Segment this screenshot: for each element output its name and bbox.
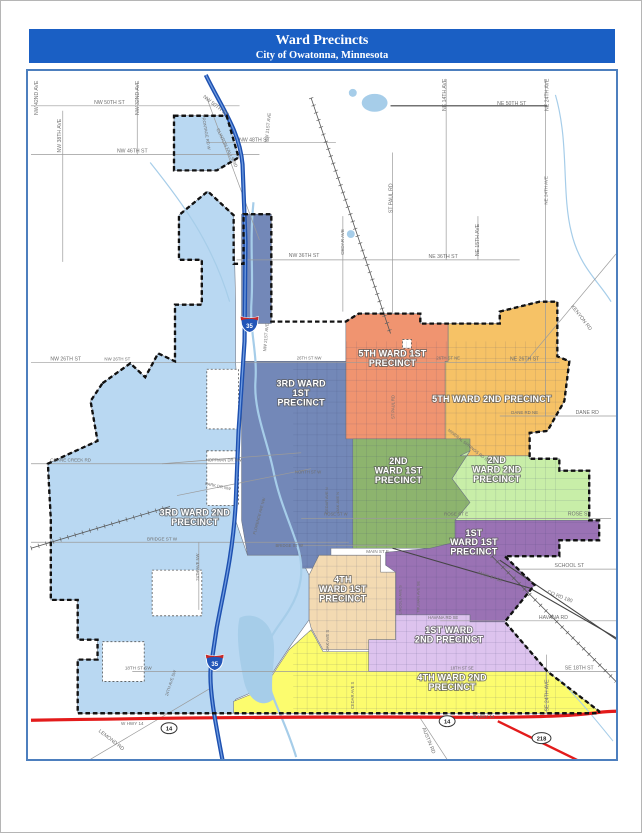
us-14-shield: 14 [439,716,455,727]
street-label: NE 26TH ST [510,356,540,362]
street-label: NORTH ST W [295,470,321,475]
street-label: NE 24TH AVE [544,78,550,111]
title-banner: Ward Precincts City of Owatonna, Minneso… [29,29,615,63]
street-label: NE 36TH ST [429,254,459,260]
street-label: CRANE CREEK RD [50,458,91,463]
street-label: OAK AVE S [325,630,330,652]
pond [362,94,388,112]
street-label: TRUMAN AVE SE [415,581,420,613]
street-label: HAVANA RD [539,615,568,621]
street-label: BRIDGE ST W [147,536,178,541]
svg-text:14: 14 [166,726,173,732]
street-label: ST PAUL RD [391,395,396,419]
pond [349,89,357,97]
pond [347,230,355,238]
svg-text:218: 218 [537,736,547,742]
street-label: SE 18TH ST [565,666,595,672]
street-label: ROSE ST E [444,511,468,516]
street-label: NW 50TH ST [94,100,125,106]
street-label: CEDAR AVE N [324,487,329,514]
street-label: 24TH AVE NW [195,553,200,580]
precinct-area-2nd-ward-1st [353,439,470,548]
map-frame: NW 42ND AVENW 38TH AVENW 32ND AVENW 50TH… [26,69,618,761]
street-label: NW 26TH ST [104,356,130,361]
street-label: ROSE ST [568,511,591,517]
street-label: NW 26TH ST [50,356,81,362]
precinct-area-5th-ward-1st [346,314,448,439]
street-label: LINCOLN AVE S [397,585,402,615]
precinct-label-5w2p: 5TH WARD 2ND PRECINCT [432,394,552,404]
street-label: MAIN ST E [366,549,389,554]
page: Ward Precincts City of Owatonna, Minneso… [0,0,642,833]
street-label: ST PAUL RD [389,183,395,213]
us-218-shield: 218 [532,733,551,744]
street-label: NE 24TH AVE [543,176,548,205]
street-label: 18TH ST SW [125,666,152,671]
street-label: NE 50TH ST [497,101,527,107]
street-label: W HWY 14 [121,721,144,726]
svg-text:35: 35 [246,324,253,330]
street-label: DANE RD NE [511,410,538,415]
footer: CITY OF OWATONNA August 09, 2024 Municip… [1,761,642,833]
street-label: 18TH ST SE [450,666,473,671]
street-label: 26TH ST NE [436,355,460,360]
street-label: E HWY 14 [473,714,495,719]
street-label: 26TH ST NW [297,355,322,360]
map-title: Ward Precincts [29,33,615,49]
svg-text:14: 14 [444,719,451,725]
street-label: NW 46TH ST [117,149,148,155]
street-label: NW 32ND AVE [135,80,141,115]
map-canvas: NW 42ND AVENW 38TH AVENW 32ND AVENW 50TH… [28,71,616,759]
street-label: OAK AVE N [335,492,340,513]
street-label: NE 14TH AVE [442,78,448,111]
street-label: CEDAR AVE S [350,681,355,709]
street-label: HAVANA RD SE [428,615,458,620]
street-label: BRIDGE ST W [276,543,303,548]
street-label: NW 36TH ST [289,253,320,259]
svg-text:35: 35 [211,662,218,668]
us-14-shield: 14 [161,723,177,734]
street-label: NW 38TH AVE [57,118,63,152]
map-subtitle: City of Owatonna, Minnesota [29,50,615,61]
street-label: HOFFMAN DR NW [206,458,242,463]
street-label: NE 15TH AVE [475,223,481,256]
street-label: DANE RD [576,410,599,416]
street-label: NW 42ND AVE [34,80,40,115]
street-label: SCHOOL ST [555,563,585,569]
street-label: SE 24TH AVE [544,679,550,712]
street-label: CEDAR AVE [340,229,345,255]
